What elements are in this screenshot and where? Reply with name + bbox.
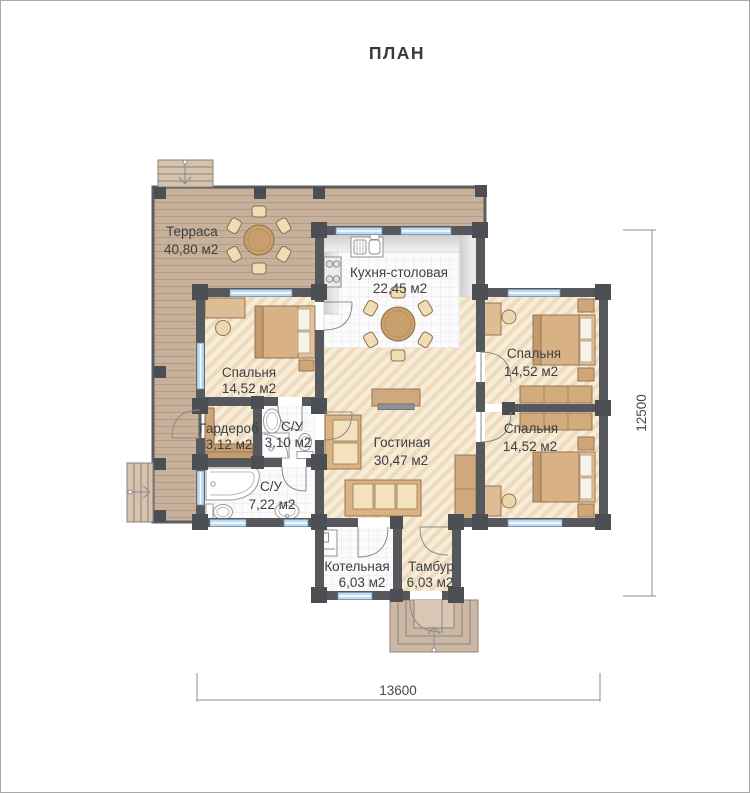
dimension-width: 13600 [379,683,417,698]
boiler-area: 6,03 м2 [339,575,386,590]
desk [205,298,245,318]
pillow [298,309,310,330]
living-label: Гостиная [374,435,431,450]
pillow [580,341,592,362]
terrace-table [244,225,274,255]
pillow [580,318,592,339]
bedroom1-label: Спальня [222,365,276,380]
page-title: ПЛАН [369,43,425,63]
vestibule-label: Тамбур [408,559,454,574]
bathroom-small-label: С/У [281,419,304,434]
pillow [298,332,310,353]
terrace-area: 40,80 м2 [164,242,218,257]
bedroom3-area: 14,52 м2 [503,439,557,454]
bathroom-large-area: 7,22 м2 [249,497,296,512]
desk [483,303,501,335]
nightstand [299,360,314,371]
kitchen-area: 22,45 м2 [373,281,427,296]
bedroom1-area: 14,52 м2 [222,381,276,396]
bedroom2-label: Спальня [507,346,561,361]
bathroom-large-label: С/У [260,479,283,494]
living-area: 30,47 м2 [374,453,428,468]
kitchen-counter-north [324,235,460,252]
wardrobe-area: 3,12 м2 [206,437,253,452]
desk [483,486,501,516]
stool [216,321,231,336]
kitchen-sink [351,234,383,258]
bedroom2-area: 14,52 м2 [504,364,558,379]
pillow [580,478,592,499]
dimension-height: 12500 [634,394,649,432]
nightstand [578,299,594,312]
kitchen-label: Кухня-столовая [350,265,448,280]
tv-stand [372,389,420,406]
pillow [580,455,592,476]
terrace-label: Терраса [166,224,218,239]
floor-plan-page: ПЛАН Терраса 40,80 м2 Кухня-столовая 22,… [0,0,750,793]
bathroom-small-area: 3,10 м2 [265,435,312,450]
boiler-label: Котельная [324,559,389,574]
tv [378,404,414,410]
dining-table [381,307,415,341]
porch-landing [414,600,454,628]
vestibule-area: 6,03 м2 [407,575,454,590]
stool [502,494,516,508]
closet [520,386,592,403]
floor-plan-svg: ПЛАН Терраса 40,80 м2 Кухня-столовая 22,… [0,0,750,793]
nightstand [578,368,594,381]
stove [324,257,341,287]
nightstand [578,504,594,517]
stool [502,310,516,324]
bedroom3-label: Спальня [504,421,558,436]
toilet-tank [297,452,313,459]
nightstand [578,437,594,450]
wardrobe-label: Гардероб [199,421,259,436]
